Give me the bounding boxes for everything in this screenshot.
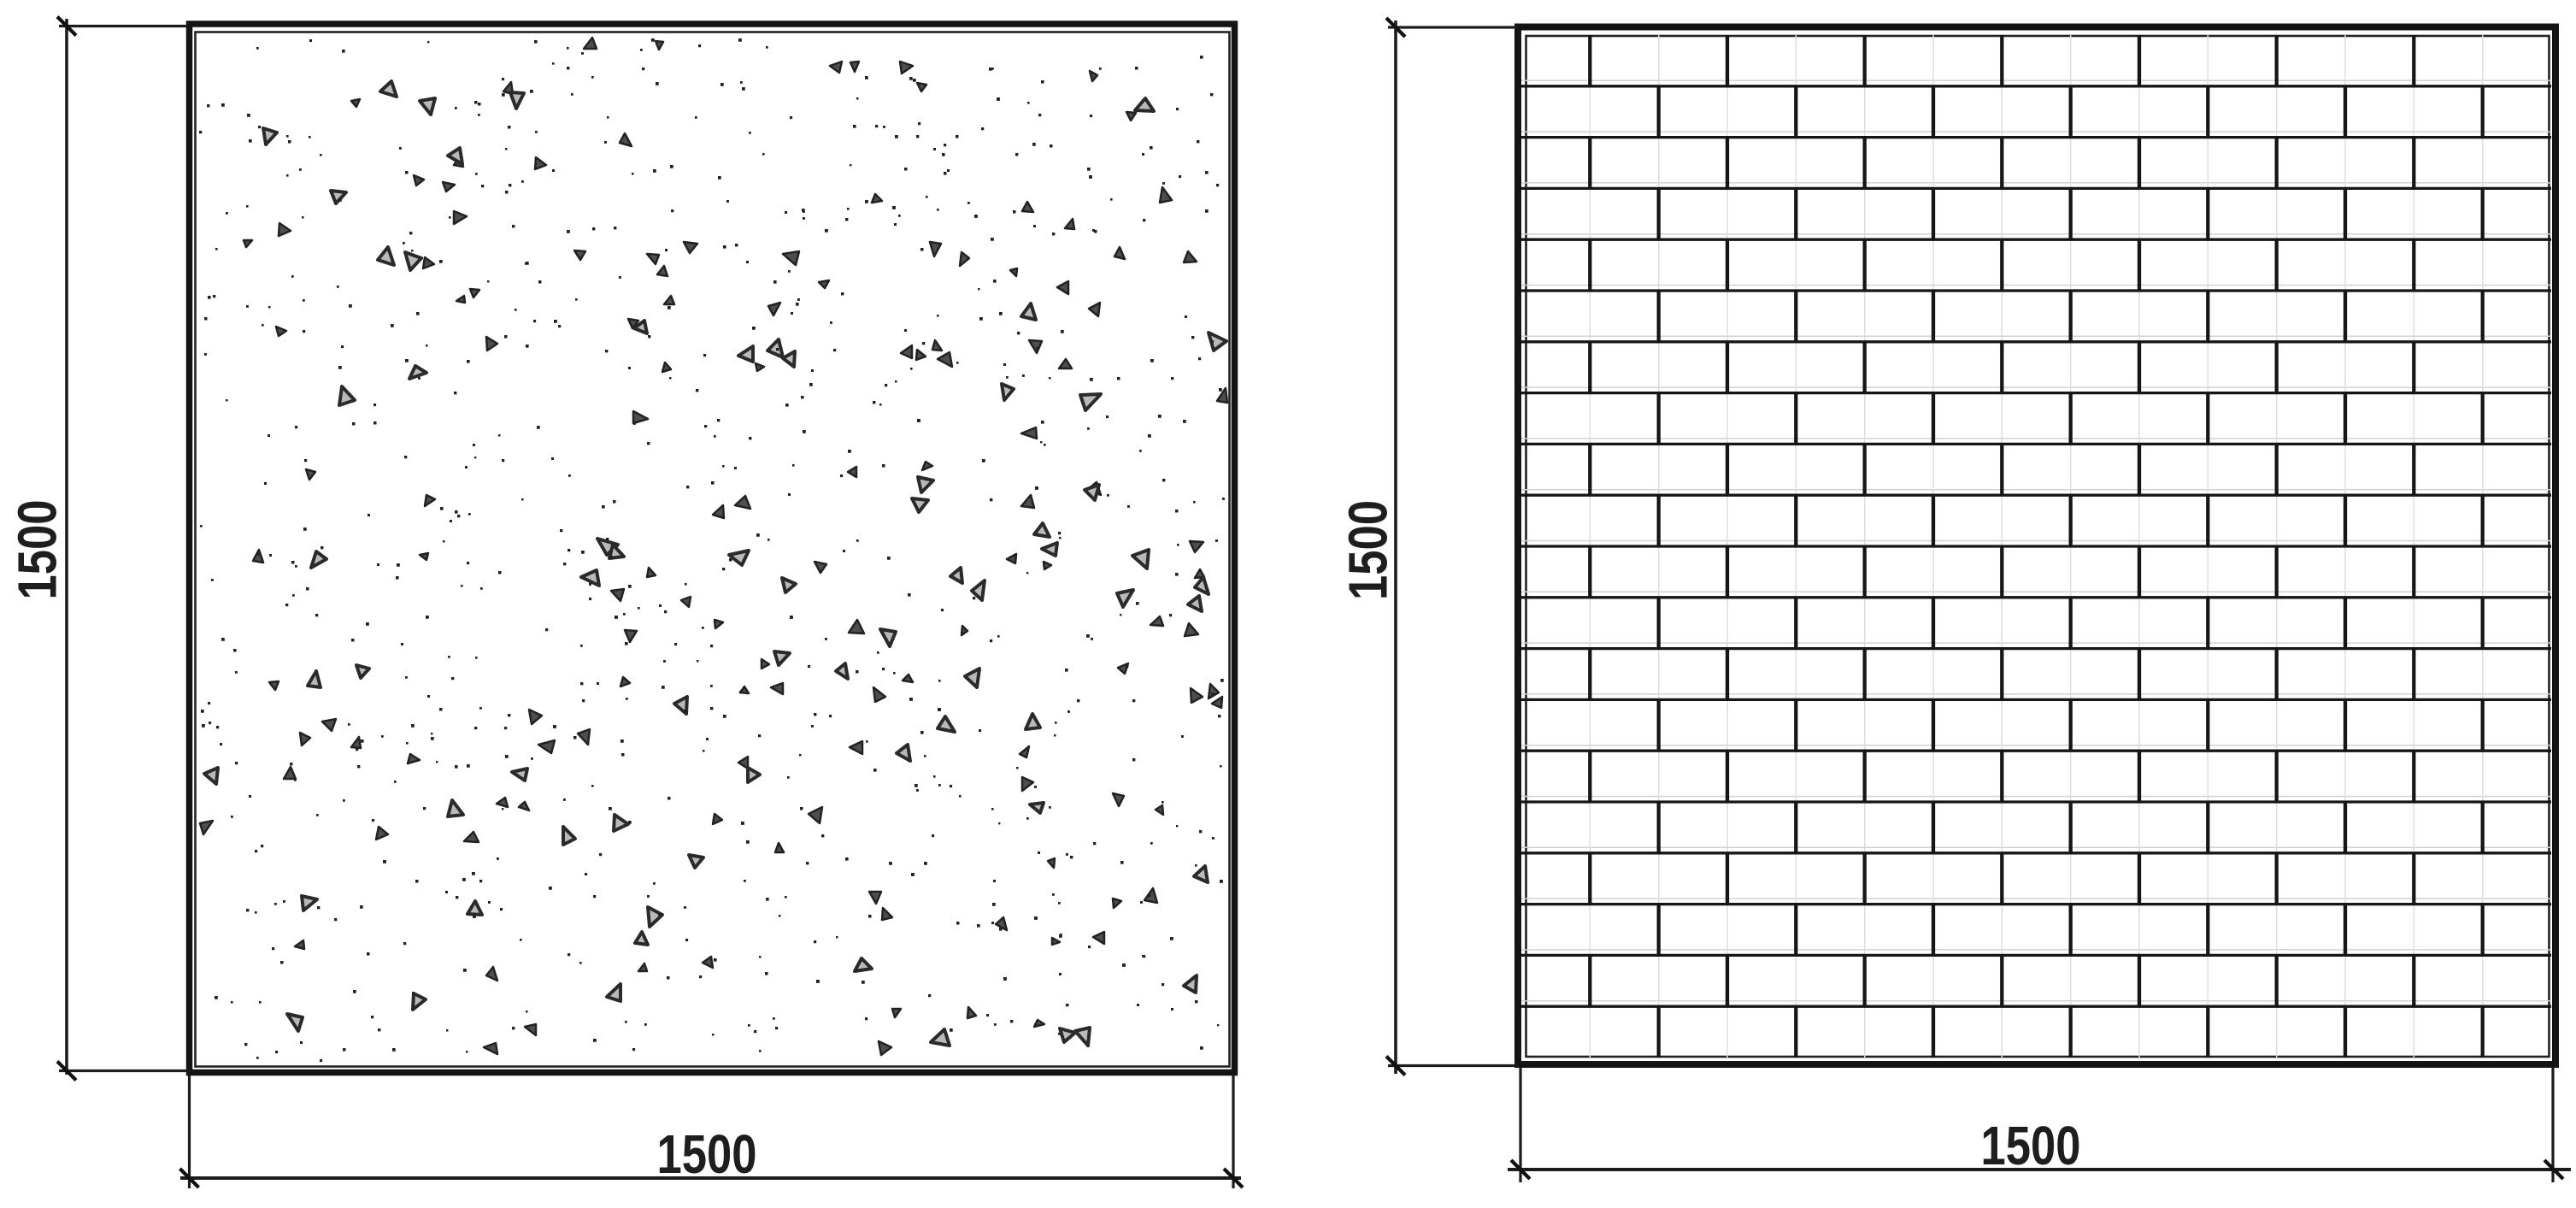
svg-text:1500: 1500 bbox=[7, 500, 68, 600]
svg-text:1500: 1500 bbox=[657, 1123, 757, 1185]
svg-text:1500: 1500 bbox=[1981, 1115, 2081, 1176]
svg-text:1500: 1500 bbox=[1338, 500, 1399, 600]
